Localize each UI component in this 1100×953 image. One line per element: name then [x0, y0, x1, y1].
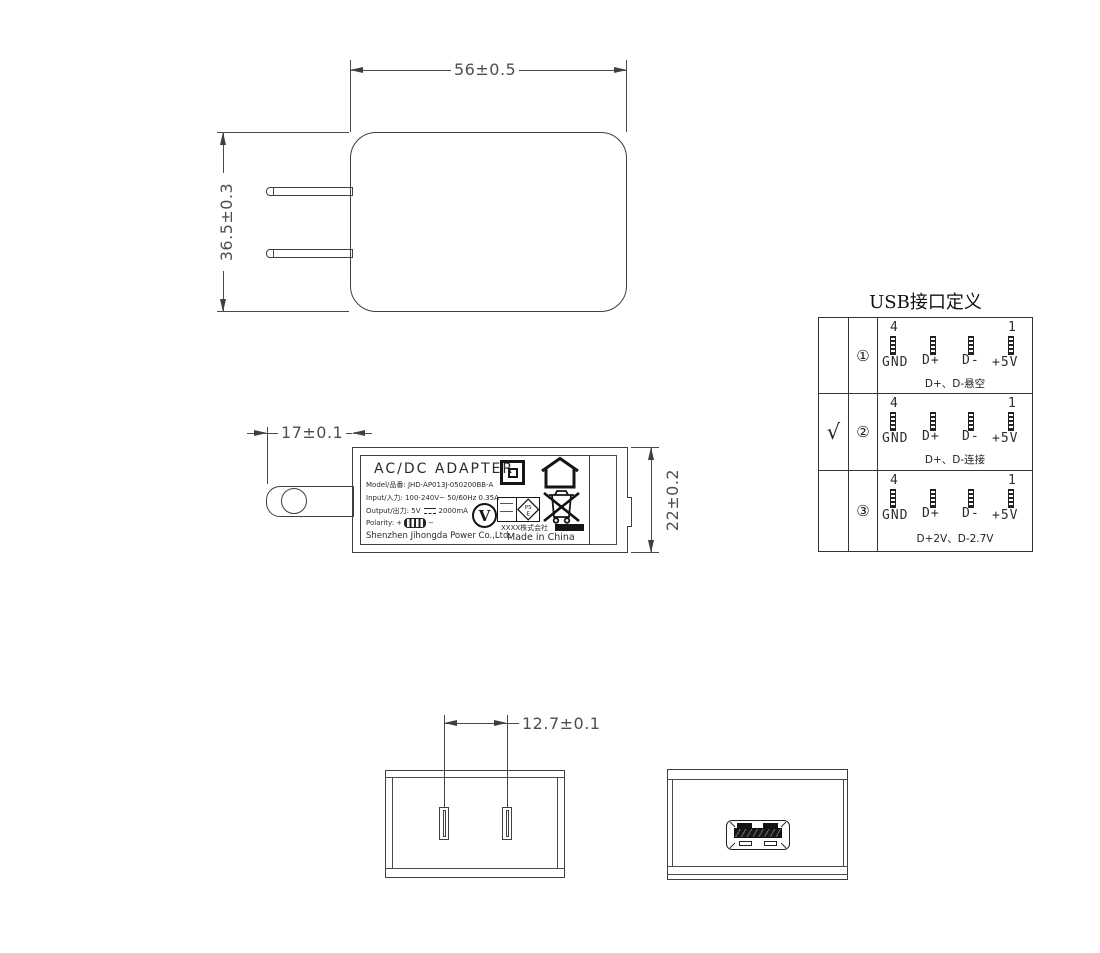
label-output-suffix: 2000mA: [439, 507, 468, 515]
usb-port-notch: [627, 497, 632, 527]
dimension-arrow-icon: [350, 67, 363, 73]
usb-pin-icon: [890, 489, 896, 508]
body-inner-line: [616, 455, 617, 545]
row-pin-diagram: 4 1 GND D+ D- +5V D+、D-悬空: [878, 318, 1032, 393]
efficiency-level-v-icon: V: [472, 503, 497, 528]
extension-line: [217, 132, 349, 133]
side-view-prong: [266, 486, 354, 517]
row-number-cell: ①: [849, 318, 878, 393]
pin-label-gnd: GND: [882, 355, 908, 370]
prong-slot-inner: [443, 810, 446, 837]
pin-number-1: 1: [1008, 396, 1016, 411]
row-check-cell: √: [819, 394, 849, 470]
polarity-label: Polarity:: [366, 519, 394, 527]
label-polarity-line: Polarity: +−: [366, 518, 434, 528]
dc-symbol-icon: [424, 508, 436, 514]
pin-label-5v: +5V: [992, 508, 1018, 523]
label-company: Shenzhen Jihongda Power Co.,Ltd.: [366, 531, 511, 541]
usb-table-title: USB接口定义: [818, 288, 1033, 314]
prong-slot: [502, 807, 512, 840]
usb-pin-icon: [890, 336, 896, 355]
extension-line: [507, 715, 508, 807]
row-number-cell: ③: [849, 471, 878, 551]
usb-pin-icon: [1008, 489, 1014, 508]
dimension-side-depth: 22±0.2: [664, 451, 682, 549]
prong-cap-line: [273, 188, 274, 195]
usb-pin-icon: [1008, 412, 1014, 431]
technical-drawing-canvas: 56±0.5 36.5±0.3 AC/DC ADAPTER Model/品番: …: [0, 0, 1100, 953]
prong-slot: [439, 807, 449, 840]
pin-label-dplus: D+: [922, 506, 940, 521]
usb-definition-table: ① 4 1 GND D+ D- +5V D+、D-悬空 √ ② 4 1: [818, 317, 1033, 552]
dimension-side-prong: 17±0.1: [278, 424, 346, 442]
front-view-prong-bottom: [266, 249, 353, 258]
flange-line: [667, 874, 848, 875]
dimension-front-height: 36.5±0.3: [218, 173, 236, 271]
pin-label-5v: +5V: [992, 355, 1018, 370]
front-view-body-outline: [350, 132, 627, 312]
cert-microtext: [498, 498, 517, 521]
dimension-arrow-icon: [444, 720, 457, 726]
pin-label-dminus: D-: [962, 506, 980, 521]
row-note: D+、D-悬空: [878, 376, 1032, 391]
indoor-use-house-icon: [539, 456, 581, 489]
body-inner-line: [672, 779, 673, 866]
front-view-prong-top: [266, 187, 353, 196]
label-output-line: Output/出力: 5V2000mA: [366, 506, 468, 516]
polarity-minus: −: [428, 519, 434, 527]
usb-connector-icon: [404, 518, 426, 528]
row-number-cell: ②: [849, 394, 878, 470]
dimension-arrow-icon: [220, 299, 226, 312]
dimension-front-width: 56±0.5: [451, 61, 519, 79]
usb-tongue: [734, 828, 782, 838]
pse-certification-box: PS E: [497, 497, 540, 522]
pin-number-4: 4: [890, 473, 898, 488]
class-ii-icon: [500, 460, 525, 485]
usb-contact-tab: [739, 841, 752, 846]
weee-crossed-bin-icon: [541, 488, 581, 526]
pse-text-bottom: E: [526, 511, 530, 517]
pin-number-1: 1: [1008, 320, 1016, 335]
pse-diamond-icon: PS E: [517, 498, 539, 521]
row-pin-diagram: 4 1 GND D+ D- +5V D+、D-连接: [878, 394, 1032, 470]
row-pin-diagram: 4 1 GND D+ D- +5V D+2V、D-2.7V: [878, 471, 1032, 551]
class-ii-inner-square: [508, 468, 518, 478]
polarity-plus: +: [396, 519, 402, 527]
body-inner-line: [557, 777, 558, 868]
dimension-line: [651, 447, 652, 553]
label-made-in: Made in China: [507, 532, 575, 543]
pin-label-gnd: GND: [882, 508, 908, 523]
dimension-arrow-icon: [648, 447, 654, 460]
prong-slot-inner: [506, 810, 509, 837]
dimension-pin-spacing: 12.7±0.1: [519, 715, 603, 733]
body-inner-line: [392, 777, 393, 868]
body-inner-line: [843, 779, 844, 866]
weee-bar-icon: [555, 524, 584, 531]
extension-line: [217, 311, 349, 312]
flange-line: [667, 779, 848, 780]
row-check-cell: [819, 471, 849, 551]
flange-line: [385, 868, 565, 869]
row-note: D+2V、D-2.7V: [878, 531, 1032, 546]
pin-label-dminus: D-: [962, 429, 980, 444]
row-check-cell: [819, 318, 849, 393]
usb-pin-icon: [890, 412, 896, 431]
label-title: AC/DC ADAPTER: [374, 461, 514, 477]
pse-text-top: PS: [524, 505, 531, 511]
prong-hole: [281, 488, 307, 514]
dimension-arrow-icon: [254, 430, 267, 436]
flange-line: [385, 777, 565, 778]
bottom-view-outline: [385, 770, 565, 878]
label-input-line: Input/入力: 100-240V~ 50/60Hz 0.35A: [366, 493, 499, 503]
pin-number-1: 1: [1008, 473, 1016, 488]
prong-cap-line: [273, 250, 274, 257]
pin-label-dplus: D+: [922, 353, 940, 368]
flange-line: [667, 866, 848, 867]
usb-pin-icon: [1008, 336, 1014, 355]
extension-line: [444, 715, 445, 807]
table-row: √ ② 4 1 GND D+ D- +5V D+、D-连接: [819, 394, 1032, 471]
pin-number-4: 4: [890, 396, 898, 411]
label-output-prefix: Output/出力: 5V: [366, 507, 421, 515]
pin-label-dminus: D-: [962, 353, 980, 368]
pin-number-4: 4: [890, 320, 898, 335]
extension-line: [631, 447, 659, 448]
dimension-arrow-icon: [494, 720, 507, 726]
extension-line: [267, 427, 268, 484]
table-row: ③ 4 1 GND D+ D- +5V D+2V、D-2.7V: [819, 471, 1032, 551]
efficiency-letter: V: [479, 507, 491, 525]
pin-label-5v: +5V: [992, 431, 1018, 446]
pin-label-gnd: GND: [882, 431, 908, 446]
row-note: D+、D-连接: [878, 452, 1032, 467]
pin-label-dplus: D+: [922, 429, 940, 444]
dimension-arrow-icon: [220, 132, 226, 145]
label-model-line: Model/品番: JHD-AP013J-050200BB-A: [366, 480, 493, 490]
table-row: ① 4 1 GND D+ D- +5V D+、D-悬空: [819, 318, 1032, 394]
dimension-line: [353, 433, 372, 434]
dimension-arrow-icon: [614, 67, 627, 73]
usb-contact-tab: [764, 841, 777, 846]
dimension-arrow-icon: [648, 540, 654, 553]
extension-line: [631, 552, 659, 553]
